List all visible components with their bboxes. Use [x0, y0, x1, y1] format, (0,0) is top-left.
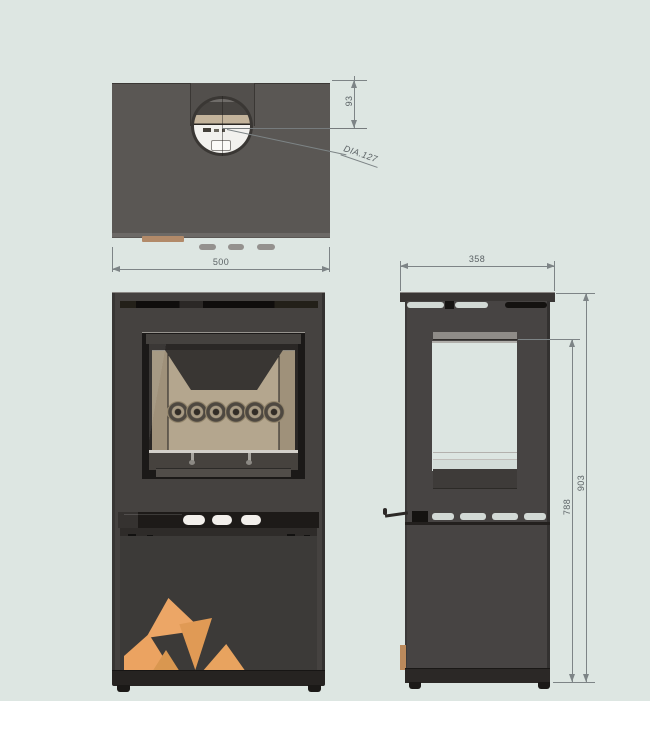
- stove-technical-drawing: 500 93 DIA.127 358 788 903: [0, 0, 650, 750]
- front-foot: [308, 685, 321, 692]
- dimension-label-top-width: 500: [201, 256, 241, 268]
- arrowhead: [547, 263, 555, 269]
- front-vent-highlight: [124, 514, 182, 515]
- flue-collar: [191, 96, 253, 156]
- side-vent: [492, 513, 518, 520]
- log-stack: [124, 598, 249, 672]
- dimension-label-flue-diameter: DIA.127: [340, 142, 382, 168]
- flue-damper-plate: [211, 140, 231, 151]
- side-vent: [460, 513, 486, 520]
- side-window-sill-line: [433, 452, 517, 453]
- door-handle-top: [142, 236, 184, 242]
- ext-line: [556, 293, 595, 294]
- top-vent-slot: [228, 244, 244, 250]
- flue-centerline: [222, 96, 223, 156]
- front-base-plate: [112, 670, 325, 686]
- side-top-notch: [445, 301, 454, 309]
- dimension-label-flue-offset: 93: [343, 88, 355, 114]
- side-window-lower-panel: [433, 469, 517, 489]
- dim-line-500: [112, 269, 330, 270]
- dimension-label-overall-height: 903: [575, 468, 587, 498]
- side-top-gap: [407, 302, 444, 308]
- side-base-plate: [405, 668, 550, 683]
- ext-line: [222, 128, 367, 129]
- side-top-slot-dark: [505, 302, 547, 308]
- side-vent: [524, 513, 546, 520]
- arrowhead: [583, 293, 589, 301]
- arrowhead: [351, 120, 357, 128]
- log: [202, 644, 246, 672]
- arrowhead: [569, 339, 575, 347]
- ext-line: [553, 682, 595, 683]
- page-margin: [0, 701, 650, 750]
- side-window-header: [433, 332, 517, 340]
- arrowhead: [112, 266, 120, 272]
- side-handle-mount: [412, 511, 428, 522]
- front-foot: [117, 685, 130, 692]
- glass-sheen: [149, 344, 298, 470]
- top-vent-slot: [199, 244, 216, 250]
- side-foot: [409, 682, 421, 689]
- dim-line-358: [400, 266, 555, 267]
- arrowhead: [583, 674, 589, 682]
- side-door-handle-tip: [383, 508, 387, 515]
- arrowhead: [569, 674, 575, 682]
- side-divider: [405, 522, 550, 525]
- dimension-label-inner-height: 788: [561, 492, 573, 522]
- side-log-sliver: [400, 645, 406, 670]
- side-vent: [432, 513, 454, 520]
- flue-stamp-mark: [203, 128, 211, 132]
- front-top-groove: [120, 301, 318, 308]
- ext-line: [332, 80, 367, 81]
- dimension-label-depth: 358: [457, 253, 497, 265]
- flue-stamp-mark: [214, 129, 219, 132]
- side-top-gap: [455, 302, 488, 308]
- front-vent: [183, 515, 205, 525]
- front-vent: [241, 515, 261, 525]
- top-vent-slot: [257, 244, 275, 250]
- arrowhead: [400, 263, 408, 269]
- arrowhead: [351, 80, 357, 88]
- front-door-top-bar: [146, 334, 301, 344]
- side-foot: [538, 682, 550, 689]
- arrowhead: [322, 266, 330, 272]
- front-vent: [212, 515, 232, 525]
